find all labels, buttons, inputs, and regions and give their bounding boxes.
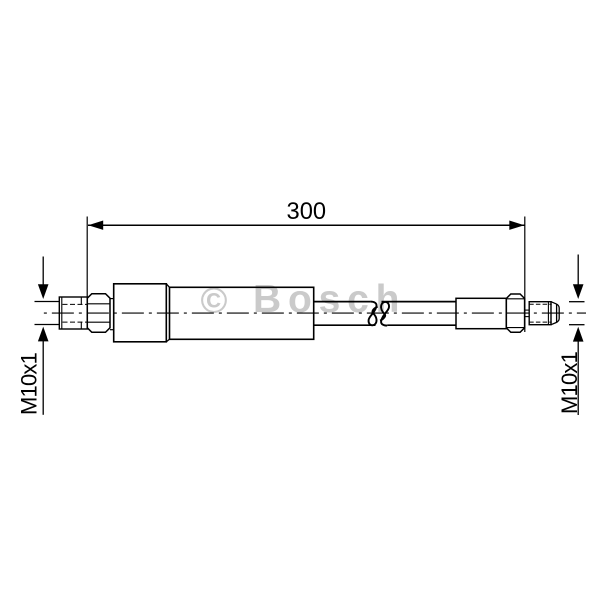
svg-text:©: © (201, 280, 228, 321)
svg-text:M10x1: M10x1 (557, 351, 582, 414)
svg-text:300: 300 (287, 199, 327, 225)
svg-text:M10x1: M10x1 (16, 352, 41, 415)
